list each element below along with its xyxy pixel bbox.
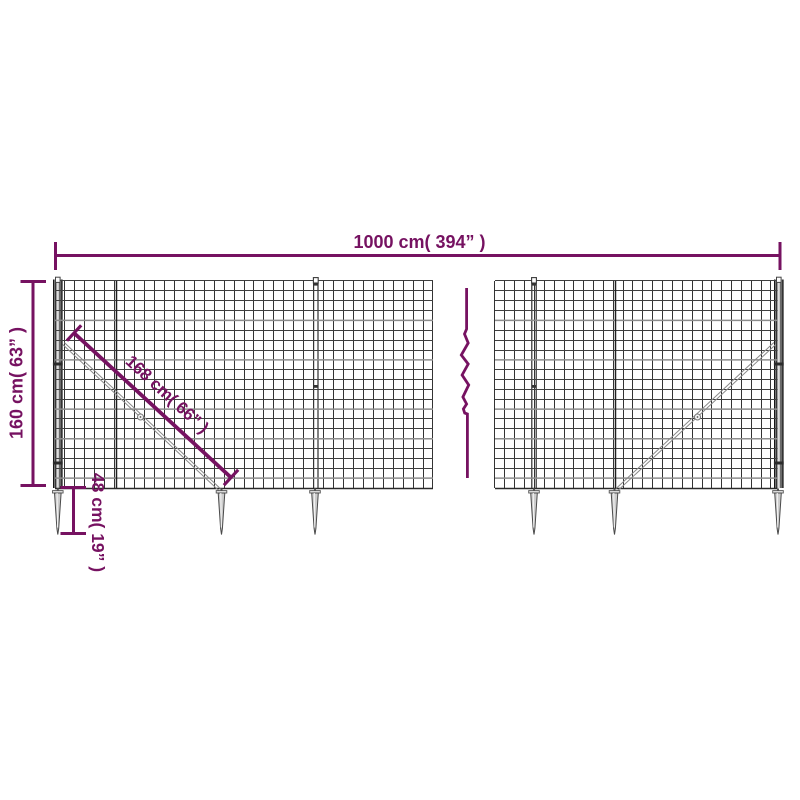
svg-text:1000 cm( 394” ): 1000 cm( 394” ): [353, 232, 485, 252]
svg-text:48 cm( 19” ): 48 cm( 19” ): [88, 473, 108, 572]
svg-text:160 cm( 63” ): 160 cm( 63” ): [7, 327, 27, 439]
